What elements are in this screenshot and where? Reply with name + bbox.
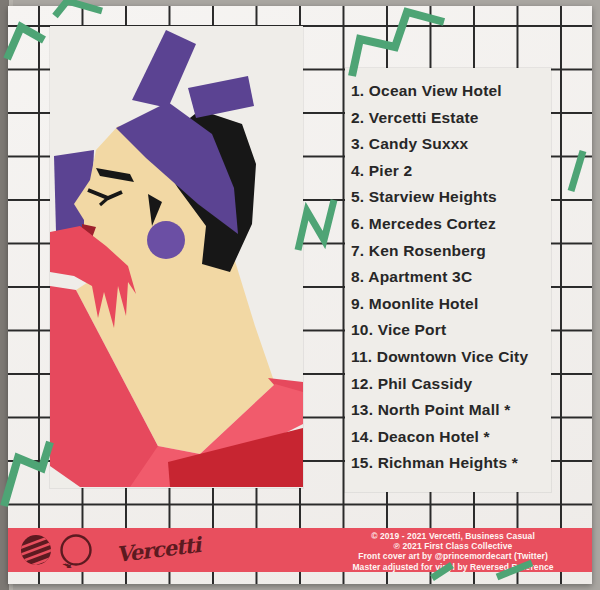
- track-list: 1. Ocean View Hotel2. Vercetti Estate3. …: [345, 68, 551, 477]
- track-item: 14. Deacon Hotel *: [351, 424, 549, 451]
- illustration-panel: [50, 26, 303, 488]
- album-back-cover: 1. Ocean View Hotel2. Vercetti Estate3. …: [8, 6, 592, 584]
- track-item: 9. Moonlite Hotel: [351, 291, 549, 318]
- track-item: 10. Vice Port: [351, 317, 549, 344]
- airplane-circle-logo: ✈: [58, 532, 94, 568]
- track-item: 5. Starview Heights: [351, 184, 549, 211]
- track-item: 8. Apartment 3C: [351, 264, 549, 291]
- credits-banner: ✈ Vercetti © 2019 - 2021 Vercetti, Busin…: [8, 528, 592, 572]
- track-item: 3. Candy Suxxx: [351, 131, 549, 158]
- credit-line: Front cover art by @princemordecart (Twi…: [328, 551, 578, 561]
- vercetti-signature: Vercetti: [115, 531, 202, 566]
- track-item: 15. Richman Heights *: [351, 450, 549, 477]
- track-item: 7. Ken Rosenberg: [351, 238, 549, 265]
- credit-line: Master adjusted for vinyl by Reversed Re…: [328, 562, 578, 572]
- logo-row: ✈: [18, 532, 94, 568]
- track-item: 12. Phil Cassidy: [351, 371, 549, 398]
- track-item: 6. Mercedes Cortez: [351, 211, 549, 238]
- airplane-icon: ✈: [58, 556, 80, 568]
- woman-portrait-illustration: [50, 26, 303, 488]
- photo-of-album-back-cover: 1. Ocean View Hotel2. Vercetti Estate3. …: [0, 0, 600, 590]
- track-item: 2. Vercetti Estate: [351, 105, 549, 132]
- track-item: 11. Downtown Vice City: [351, 344, 549, 371]
- tracklist-panel: 1. Ocean View Hotel2. Vercetti Estate3. …: [345, 68, 551, 492]
- track-item: 1. Ocean View Hotel: [351, 78, 549, 105]
- track-item: 4. Pier 2: [351, 158, 549, 185]
- earring: [147, 221, 185, 259]
- credit-line: © 2019 - 2021 Vercetti, Business Casual: [328, 531, 578, 541]
- credits: © 2019 - 2021 Vercetti, Business Casual℗…: [328, 531, 578, 572]
- credit-line: ℗ 2021 First Class Collective: [328, 541, 578, 551]
- track-item: 13. North Point Mall *: [351, 397, 549, 424]
- striped-circle-logo: [18, 532, 54, 568]
